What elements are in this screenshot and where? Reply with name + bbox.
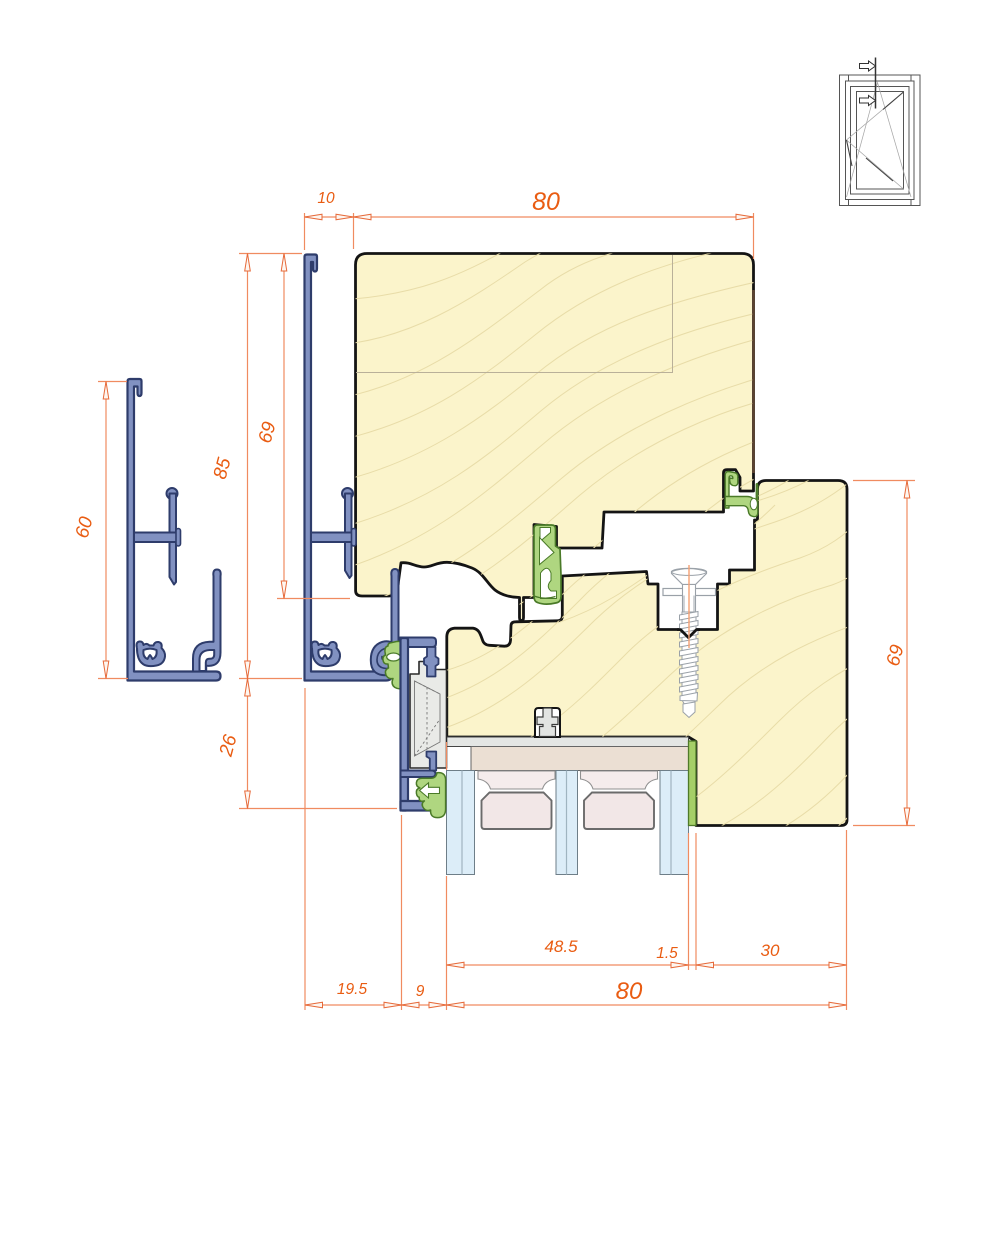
svg-text:48.5: 48.5 [544,937,578,956]
svg-text:10: 10 [317,190,335,207]
svg-text:1.5: 1.5 [656,945,678,962]
svg-text:9: 9 [416,983,425,1000]
svg-text:19.5: 19.5 [337,981,368,998]
svg-text:80: 80 [616,978,643,1005]
svg-text:80: 80 [532,188,560,216]
svg-text:30: 30 [761,941,780,960]
